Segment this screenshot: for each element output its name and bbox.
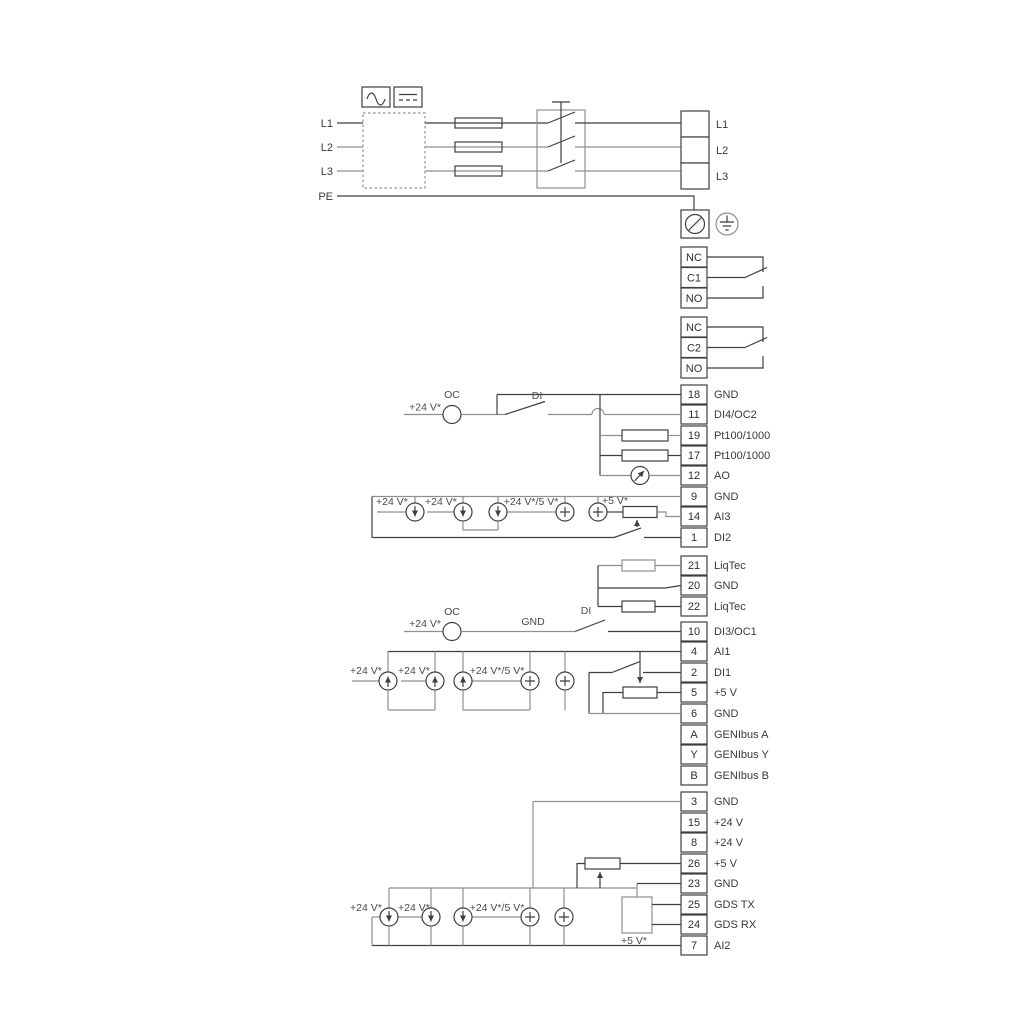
voltage-source-icon (555, 908, 573, 926)
dc-symbol-box (394, 87, 422, 107)
terminal-label: AI1 (714, 646, 731, 658)
potentiometer (585, 858, 620, 869)
terminal-label: AI3 (714, 511, 731, 523)
input-label-l2: L2 (321, 142, 333, 154)
terminal-number: 18 (688, 389, 700, 401)
oc-label: OC (444, 606, 460, 618)
output-label-l1: L1 (716, 119, 728, 131)
voltage-source-icon (556, 672, 574, 690)
input-label-l3: L3 (321, 166, 333, 178)
terminal-number: A (690, 729, 698, 741)
terminal-number: 8 (691, 837, 697, 849)
terminal-number: 24 (688, 919, 700, 931)
potentiometer (623, 507, 657, 518)
pt100-sensor-2 (622, 450, 668, 461)
terminal-number: 21 (688, 560, 700, 572)
di-switch (505, 402, 545, 415)
terminal-label: GND (714, 580, 739, 592)
relay2-c2: C2 (687, 343, 701, 355)
current-source-icon (422, 908, 440, 926)
supply-label: +24 V*/5 V* (470, 902, 525, 914)
disconnect-switch (537, 102, 585, 188)
terminal-strip-4: 3GND 15+24 V 8+24 V 26+5 V 23GND 25GDS T… (681, 792, 757, 955)
di2-switch (614, 528, 641, 538)
terminal-number: 22 (688, 601, 700, 613)
terminal-number: 15 (688, 817, 700, 829)
di1-switch (612, 662, 640, 673)
terminal-label: +5 V (714, 858, 738, 870)
terminal-label: GENIbus B (714, 770, 769, 782)
liqtec-sensor-2 (622, 601, 655, 612)
wire-jump (592, 409, 604, 415)
current-source-icon (454, 908, 472, 926)
terminal-number: Y (690, 749, 698, 761)
terminal-strip-1: 18GND 11DI4/OC2 19Pt100/1000 17Pt100/100… (681, 385, 770, 547)
input-label-pe: PE (318, 191, 333, 203)
terminal-number: 14 (688, 511, 700, 523)
terminal-number: 23 (688, 878, 700, 890)
terminal-number: 26 (688, 858, 700, 870)
terminal-number: 17 (688, 450, 700, 462)
current-source-icon (379, 672, 397, 690)
di3-oc1-circuit: +24 V* OC GND DI (404, 605, 681, 641)
power-input-section: L1 L2 L3 PE (318, 87, 738, 238)
open-collector-node (443, 623, 461, 641)
terminal-label: LiqTec (714, 560, 746, 572)
ai2-gds-circuit: +5 V* +24 V* +24 V* +24 V*/5 V* (350, 802, 681, 948)
potentiometer (623, 687, 657, 698)
wiring-diagram: L1 L2 L3 PE (0, 0, 1024, 1024)
open-collector-node (443, 406, 461, 424)
output-label-l3: L3 (716, 171, 728, 183)
terminal-number: 25 (688, 899, 700, 911)
relay1-c1: C1 (687, 273, 701, 285)
terminal-number: 1 (691, 532, 697, 544)
supply-label: +5 V* (602, 495, 628, 507)
terminal-label: GND (714, 796, 739, 808)
terminal-label: GND (714, 389, 739, 401)
terminal-number: 6 (691, 708, 697, 720)
terminal-label: +5 V (714, 687, 738, 699)
supply-label: +24 V* (376, 496, 408, 508)
ai1-di1-circuit: +24 V* +24 V* +24 V*/5 V* (350, 652, 681, 714)
output-label-l2: L2 (716, 145, 728, 157)
terminal-number: 9 (691, 491, 697, 503)
terminal-label: +24 V (714, 817, 744, 829)
terminal-label: DI4/OC2 (714, 409, 757, 421)
terminal-label: GND (714, 878, 739, 890)
earth-ground-icon (716, 213, 738, 235)
supply-label: +24 V* (409, 402, 441, 414)
terminal-label: Pt100/1000 (714, 450, 770, 462)
terminal-label: DI2 (714, 532, 731, 544)
supply-label: +24 V* (398, 665, 430, 677)
pe-wire (337, 196, 694, 210)
supply-label: +24 V* (398, 902, 430, 914)
relay1-contact (745, 268, 767, 278)
current-source-icon (380, 908, 398, 926)
terminal-number: 11 (688, 409, 699, 421)
terminal-number: 5 (691, 687, 697, 699)
current-source-icon (454, 672, 472, 690)
relay-1-block: NC C1 NO (681, 247, 767, 308)
di-label: DI (581, 605, 592, 617)
terminal-label: GDS TX (714, 899, 755, 911)
voltage-source-icon (521, 672, 539, 690)
terminal-label: GND (714, 491, 739, 503)
terminal-label: LiqTec (714, 601, 746, 613)
terminal-label: AO (714, 470, 730, 482)
ao-meter-icon (631, 467, 649, 485)
terminal-number: 4 (691, 646, 697, 658)
di-label: DI (532, 390, 543, 402)
supply-label: +24 V* (425, 496, 457, 508)
relay2-nc: NC (686, 322, 702, 334)
terminal-label: DI3/OC1 (714, 626, 757, 638)
terminal-label: +24 V (714, 837, 744, 849)
terminal-number: 20 (688, 580, 700, 592)
relay1-no: NO (686, 293, 703, 305)
terminal-number: B (690, 770, 697, 782)
supply-label: +24 V* (350, 665, 382, 677)
wiring-diagram-page: L1 L2 L3 PE (0, 0, 1024, 1024)
terminal-label: AI2 (714, 940, 731, 952)
terminal-label: DI1 (714, 667, 731, 679)
relay2-contact (745, 338, 767, 348)
terminal-label: GENIbus Y (714, 749, 769, 761)
current-source-icon (489, 503, 507, 521)
current-source-icon (426, 672, 444, 690)
terminal-number: 12 (688, 470, 700, 482)
terminal-number: 3 (691, 796, 697, 808)
terminal-strip-2: 21LiqTec 20GND 22LiqTec (681, 556, 746, 616)
di-switch (575, 620, 605, 632)
current-source-icon (406, 503, 424, 521)
input-label-l1: L1 (321, 118, 333, 130)
terminal-number: 7 (691, 940, 697, 952)
ac-symbol-box (362, 87, 390, 107)
di4-oc2-circuit: +24 V* OC DI (404, 389, 681, 485)
relay2-no: NO (686, 363, 703, 375)
supply-label: +24 V* (409, 618, 441, 630)
terminal-number: 10 (688, 626, 700, 638)
rcd-filter-box (363, 113, 425, 188)
oc-label: OC (444, 389, 460, 401)
terminal-label: Pt100/1000 (714, 430, 770, 442)
ai3-di2-circuit: +24 V* +24 V* +24 V*/5 V* +5 V* (372, 495, 681, 538)
supply-label: +24 V*/5 V* (470, 665, 525, 677)
liqtec-circuit (598, 560, 681, 612)
liqtec-sensor-1 (622, 560, 655, 571)
supply-label: +24 V* (350, 902, 382, 914)
gds-sensor-box (622, 897, 652, 933)
voltage-source-icon (521, 908, 539, 926)
voltage-source-icon (556, 503, 574, 521)
mains-terminal-block: L1 L2 L3 (681, 111, 728, 189)
voltage-source-icon (589, 503, 607, 521)
terminal-label: GENIbus A (714, 729, 769, 741)
relay-2-block: NC C2 NO (681, 317, 767, 378)
terminal-strip-3: 10DI3/OC1 4AI1 2DI1 5+5 V 6GND AGENIbus … (681, 622, 769, 785)
relay1-nc: NC (686, 252, 702, 264)
terminal-number: 19 (688, 430, 700, 442)
pt100-sensor-1 (622, 430, 668, 441)
current-source-icon (454, 503, 472, 521)
supply-label: +24 V*/5 V* (504, 496, 559, 508)
terminal-label: GND (714, 708, 739, 720)
gnd-label: GND (521, 616, 545, 628)
terminal-label: GDS RX (714, 919, 757, 931)
terminal-number: 2 (691, 667, 697, 679)
pe-terminal (681, 210, 709, 238)
